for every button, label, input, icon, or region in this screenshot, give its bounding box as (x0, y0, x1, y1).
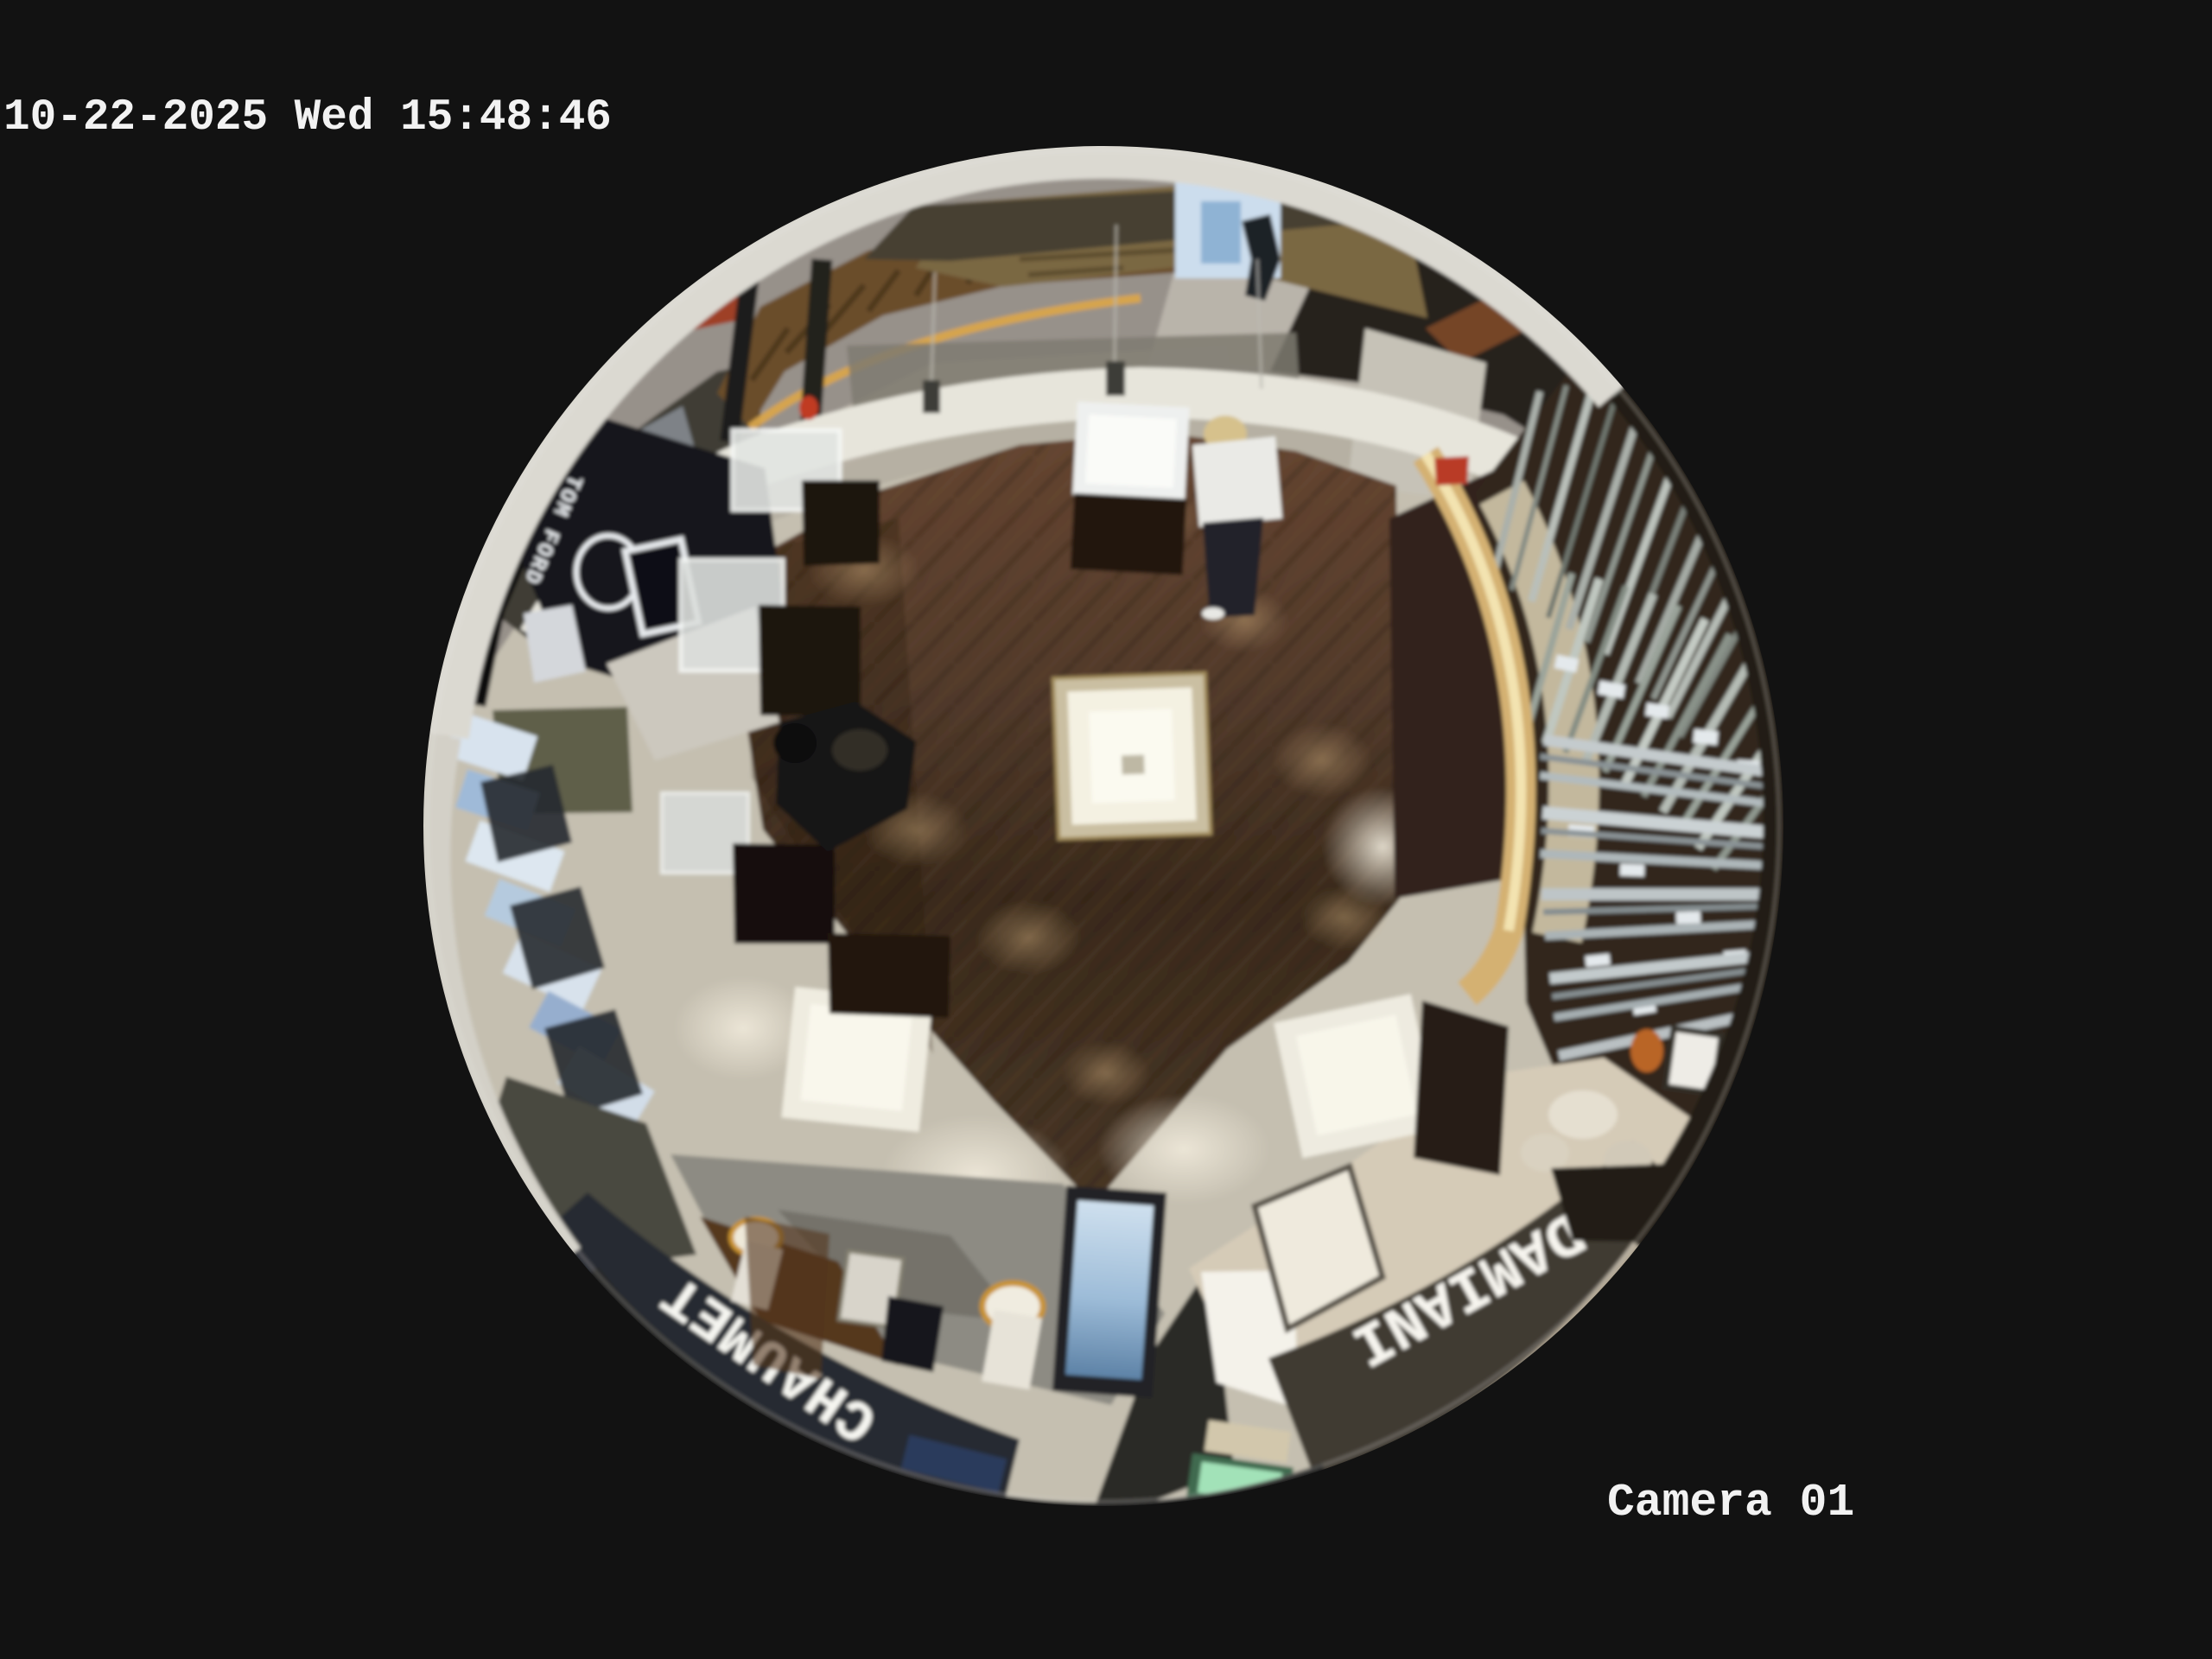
svg-text:10-22-2025 Wed 15:48:46: 10-22-2025 Wed 15:48:46 (3, 93, 612, 143)
svg-text:Camera 01: Camera 01 (1607, 1477, 1854, 1529)
